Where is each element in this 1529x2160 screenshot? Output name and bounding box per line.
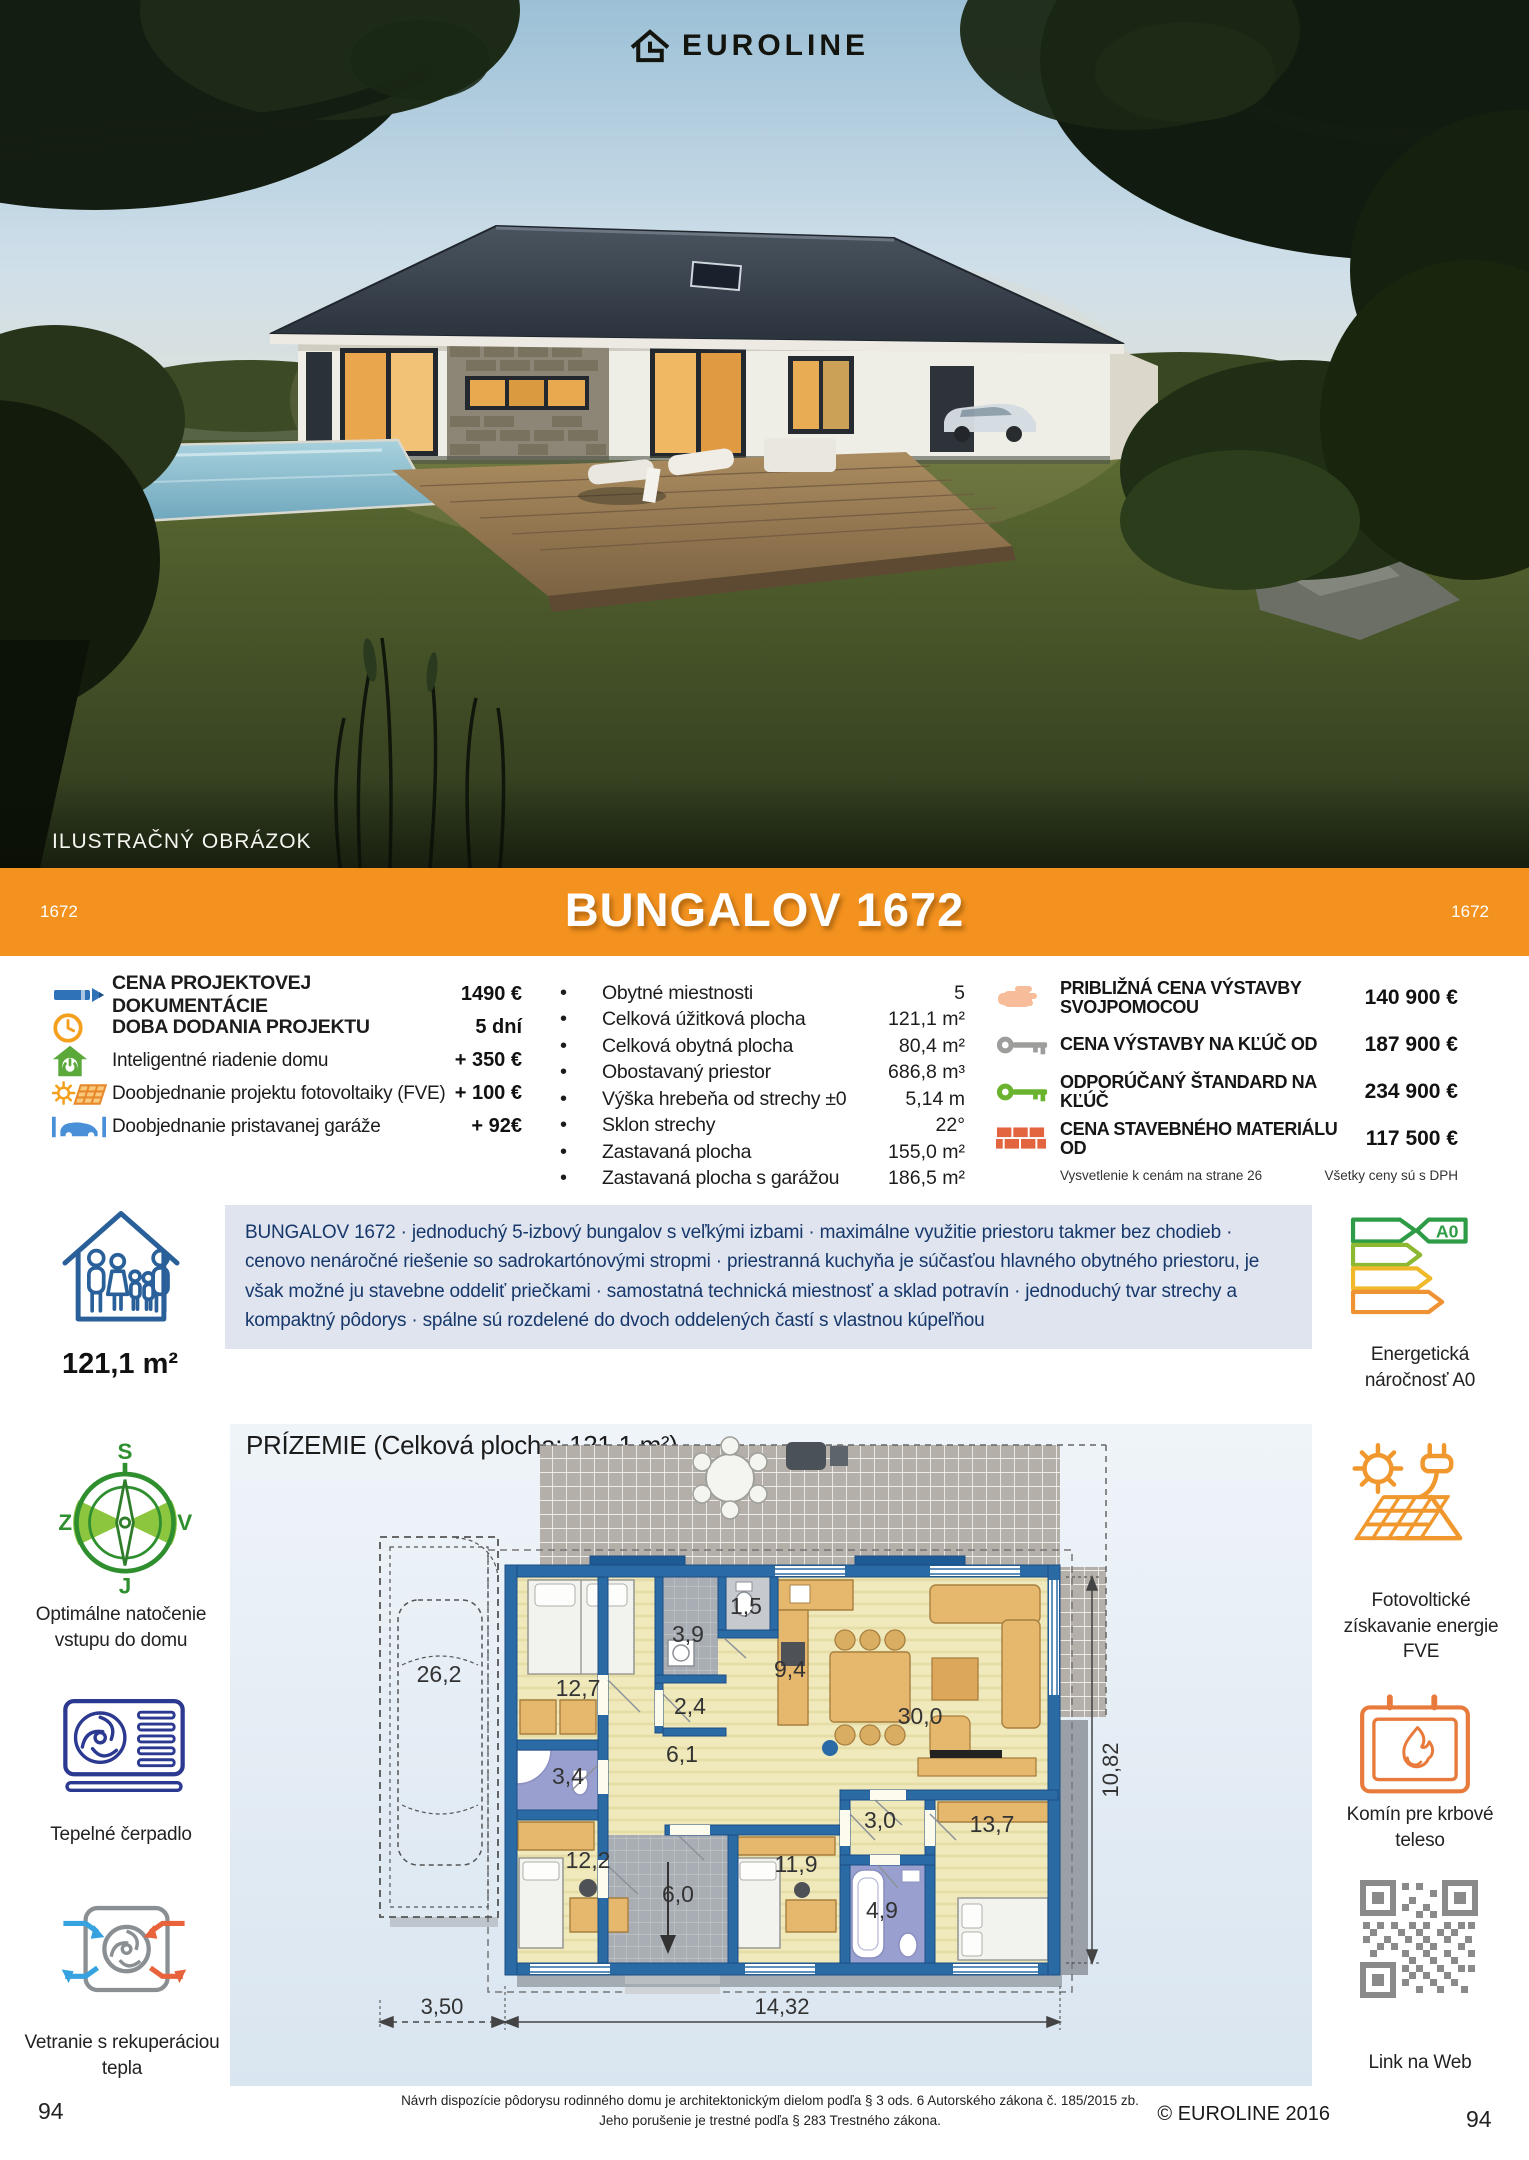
model-code-right: 1672: [1451, 902, 1489, 922]
pencil-icon: [52, 984, 112, 1006]
spec-row: •Celková obytná plocha80,4 m²: [560, 1033, 965, 1060]
ventilation-label: Vetranie s rekuperáciou tepla: [24, 2030, 220, 2081]
pricing-row: Inteligentné riadenie domu + 350 €: [52, 1044, 522, 1077]
bullet: •: [560, 1088, 602, 1111]
compass-letter-s: J: [119, 1574, 131, 1596]
energy-rating-icon: A0: [1348, 1212, 1474, 1323]
bullet: •: [560, 1035, 602, 1058]
hand-icon: [996, 983, 1060, 1013]
hero-photo: EUROLINE ILUSTRAČNÝ OBRÁZOK: [0, 0, 1529, 868]
price-note-left: Vysvetlenie k cenám na strane 26: [1060, 1168, 1262, 1183]
bullet: •: [560, 1114, 602, 1137]
key-green-icon: [996, 1081, 1060, 1103]
ventilation-icon: [60, 1902, 188, 2013]
page-number-left: 94: [38, 2098, 64, 2125]
compass-icon: S Z V J: [55, 1438, 195, 1601]
room-label-hall-a: 2,4: [674, 1693, 706, 1719]
pricing-row: Doobjednanie projektu fotovoltaiky (FVE)…: [52, 1077, 522, 1110]
photovoltaic-icon: [1344, 1438, 1478, 1563]
energy-badge: A0: [1436, 1221, 1459, 1241]
heat-pump-icon: [60, 1696, 188, 1803]
room-label-bedroom2: 12,2: [566, 1847, 611, 1873]
euroline-logo: EUROLINE: [630, 26, 869, 66]
heat-pump-label: Tepelné čerpadlo: [28, 1822, 214, 1848]
solar-icon: [52, 1079, 112, 1109]
bullet: •: [560, 1061, 602, 1084]
brand-name: EUROLINE: [682, 29, 869, 63]
pricing-row: ODPORÚČANÝ ŠTANDARD NA KĽÚČ 234 900 €: [996, 1068, 1458, 1115]
car-garage-icon: [52, 1114, 112, 1140]
room-label-hall-b: 6,1: [666, 1741, 698, 1767]
spec-row: •Obostavaný priestor686,8 m³: [560, 1060, 965, 1087]
qr-code[interactable]: [1358, 1878, 1480, 2005]
pricing-row: PRIBLIŽNÁ CENA VÝSTAVBY SVOJPOMOCOU 140 …: [996, 974, 1458, 1021]
compass-letter-e: V: [177, 1510, 192, 1535]
energy-label: Energetická náročnosť A0: [1330, 1342, 1510, 1393]
spec-list: •Obytné miestnosti5 •Celková úžitková pl…: [560, 980, 965, 1192]
room-label-living: 30,0: [898, 1703, 943, 1729]
house-photo-illustration: [0, 0, 1529, 868]
spec-row: •Sklon strechy22°: [560, 1113, 965, 1140]
dim-garage-width: 3,50: [421, 1994, 464, 2019]
dim-house-depth: 10,82: [1098, 1742, 1123, 1797]
copyright: © EUROLINE 2016: [1130, 2103, 1330, 2126]
pricing-row: Doobjednanie pristavanej garáže + 92€: [52, 1110, 522, 1143]
usable-area-label: 121,1 m²: [30, 1348, 210, 1381]
room-label-kitchen: 9,4: [774, 1656, 806, 1682]
compass-letter-w: Z: [58, 1510, 72, 1535]
spec-row: •Zastavaná plocha s garážou186,5 m²: [560, 1166, 965, 1193]
compass-label: Optimálne natočenie vstupu do domu: [28, 1602, 214, 1653]
bullet: •: [560, 982, 602, 1005]
bullet: •: [560, 1008, 602, 1031]
pricing-notes: Vysvetlenie k cenám na strane 26 Všetky …: [996, 1168, 1458, 1183]
family-house-icon: [55, 1202, 187, 1343]
bullet: •: [560, 1141, 602, 1164]
clock-icon: [52, 1012, 112, 1044]
pricing-row: CENA PROJEKTOVEJ DOKUMENTÁCIE 1490 €: [52, 978, 522, 1011]
room-label-wc: 1,5: [730, 1593, 762, 1619]
fireplace-label: Komín pre krbové teleso: [1330, 1802, 1510, 1853]
floorplan-drawing: 26,2 12,7 3,9 1,5 9,4 2,4 6,1 3,4 12,2 3…: [230, 1430, 1310, 2080]
house-description: BUNGALOV 1672 · jednoduchý 5-izbový bung…: [225, 1205, 1312, 1349]
garage-outline: [380, 1537, 498, 1917]
pricing-row: DOBA DODANIA PROJEKTU 5 dní: [52, 1011, 522, 1044]
page-title: BUNGALOV 1672: [0, 882, 1529, 937]
title-banner: 1672 BUNGALOV 1672 1672: [0, 868, 1529, 956]
spec-row: •Celková úžitková plocha121,1 m²: [560, 1007, 965, 1034]
construction-pricing-list: PRIBLIŽNÁ CENA VÝSTAVBY SVOJPOMOCOU 140 …: [996, 974, 1458, 1183]
catalog-page: EUROLINE ILUSTRAČNÝ OBRÁZOK 1672 BUNGALO…: [0, 0, 1529, 2160]
compass-letter-n: S: [118, 1439, 133, 1464]
room-label-hall-c: 3,0: [864, 1807, 896, 1833]
qr-label: Link na Web: [1338, 2050, 1502, 2076]
project-pricing-list: CENA PROJEKTOVEJ DOKUMENTÁCIE 1490 € DOB…: [52, 978, 522, 1143]
spec-row: •Výška hrebeňa od strechy ±05,14 m: [560, 1086, 965, 1113]
floorplan-panel: PRÍZEMIE (Celková plocha: 121,1 m²): [230, 1424, 1312, 2086]
bullet: •: [560, 1167, 602, 1190]
room-label-tech: 3,9: [672, 1621, 704, 1647]
room-label-entry: 6,0: [662, 1881, 694, 1907]
euroline-house-icon: [630, 26, 670, 66]
room-label-bath2: 4,9: [866, 1897, 898, 1923]
room-label-bedroom3: 11,9: [774, 1851, 817, 1877]
dim-house-width: 14,32: [754, 1994, 809, 2019]
photo-caption: ILUSTRAČNÝ OBRÁZOK: [52, 830, 312, 854]
pricing-row: CENA STAVEBNÉHO MATERIÁLU OD 117 500 €: [996, 1115, 1458, 1162]
room-label-garage: 26,2: [417, 1661, 462, 1687]
smart-home-icon: [52, 1044, 112, 1078]
room-label-bath1: 3,4: [552, 1763, 584, 1789]
room-label-bedroom4: 13,7: [970, 1811, 1015, 1837]
fireplace-icon: [1352, 1694, 1478, 1803]
key-gray-icon: [996, 1034, 1060, 1056]
pricing-row: CENA VÝSTAVBY NA KĽÚČ OD 187 900 €: [996, 1021, 1458, 1068]
photovoltaic-label: Fotovoltické získavanie energie FVE: [1326, 1588, 1516, 1665]
room-label-bedroom1: 12,7: [556, 1675, 601, 1701]
spec-row: •Zastavaná plocha155,0 m²: [560, 1139, 965, 1166]
page-number-right: 94: [1466, 2106, 1492, 2133]
price-note-right: Všetky ceny sú s DPH: [1324, 1168, 1458, 1183]
spec-row: •Obytné miestnosti5: [560, 980, 965, 1007]
bricks-icon: [996, 1126, 1060, 1152]
